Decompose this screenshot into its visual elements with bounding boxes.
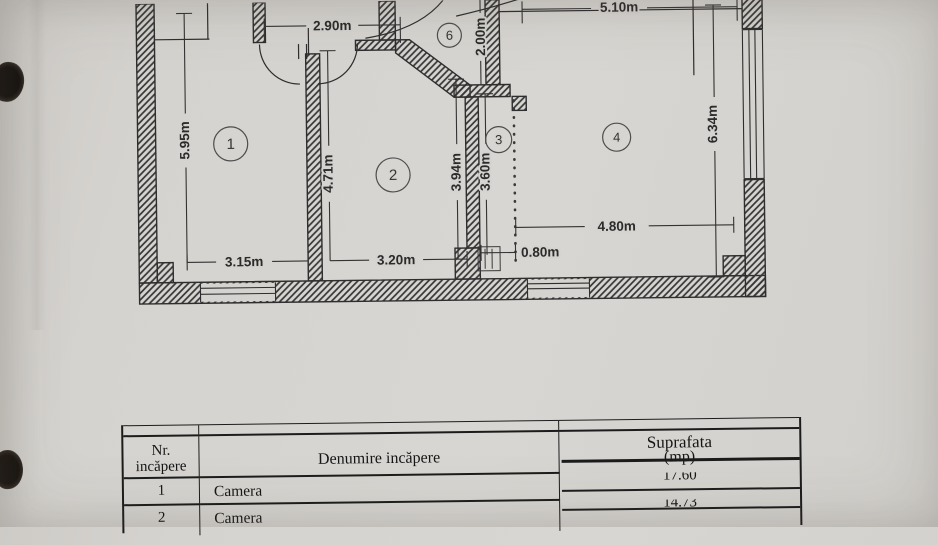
room-6-number: 6	[446, 28, 453, 43]
room-4-number: 4	[613, 130, 620, 145]
wall-outer-edge	[762, 29, 764, 178]
door-arc-hall	[365, 0, 443, 38]
header-suprafata: Suprafata (mp)	[559, 429, 799, 474]
dimension-label-corridor-width: 0.80m	[521, 244, 559, 259]
dim-line	[184, 13, 185, 113]
dotted-partition-line	[514, 100, 516, 266]
dimension-label-hall-width: 2.90m	[313, 18, 351, 33]
strip-cell	[123, 425, 199, 435]
row2-nr: 2	[124, 505, 200, 536]
dim-line	[647, 7, 737, 8]
window-bottom-left	[200, 283, 275, 302]
window-sill-line	[527, 288, 589, 289]
dim-line	[457, 200, 458, 259]
dim-line	[423, 259, 467, 260]
room-3-number: 3	[495, 132, 502, 147]
dimension-label-room1-height: 5.95m	[177, 121, 192, 159]
dimension-label-corridor-height-right: 3.60m	[477, 153, 492, 191]
row1-area-value: 17.60	[663, 471, 697, 485]
scanned-document-page: { "floor_plan": { "rooms": [ {"number": …	[0, 0, 938, 527]
room-2-number: 2	[389, 167, 398, 184]
dimension-label-room4-width: 4.80m	[598, 218, 636, 233]
row2-area: 14.73	[560, 498, 800, 528]
dimension-label-room4-height: 6.34m	[705, 105, 720, 143]
wall-right-top	[742, 0, 762, 29]
room-markers: 1 2 3 4 6	[212, 21, 631, 194]
header-nr-line1: Nr.	[123, 442, 198, 459]
dim-line	[522, 8, 591, 9]
dimension-label-room2-height: 4.71m	[320, 154, 335, 192]
room-1-number: 1	[226, 136, 235, 153]
row2-area-value: 14.73	[663, 498, 697, 512]
paper-sheet: 2.90m 5.10m 2.00m 5.95m 3.15m 4.71m 3.20…	[0, 0, 938, 545]
window-right-wall	[744, 29, 763, 178]
dim-line	[516, 227, 585, 228]
dim-line	[715, 151, 717, 277]
dimension-label-room2-width: 3.20m	[377, 252, 415, 267]
header-nr-line2: incăpere	[124, 458, 199, 475]
wall-hall-left	[379, 1, 395, 40]
dim-line	[329, 202, 330, 261]
row1-area: 17.60	[560, 471, 800, 501]
dim-line	[328, 51, 329, 146]
wall-right-bottom	[744, 179, 765, 296]
row2-name: Camera	[200, 501, 560, 535]
wall-left-step	[157, 263, 173, 283]
floor-plan: 2.90m 5.10m 2.00m 5.95m 3.15m 4.71m 3.20…	[0, 0, 938, 436]
wall-hall-ledge	[355, 40, 395, 50]
door-arc-right	[317, 43, 357, 83]
window-sill-line	[527, 283, 589, 284]
dimension-label-room1-width: 3.15m	[225, 254, 263, 269]
header-denumire-label: Denumire incăpere	[318, 449, 440, 467]
dim-line	[713, 5, 714, 97]
wall-top-door-jamb	[253, 2, 265, 42]
header-nr-incapere: Nr. incăpere	[123, 436, 200, 479]
wall-inner-edge	[742, 30, 744, 179]
partition-edge	[154, 39, 209, 40]
dim-line	[264, 26, 306, 27]
header-denumire: Denumire incăpere	[199, 432, 559, 478]
dimension-label-corridor-height-left: 3.94m	[448, 153, 463, 191]
door-arc-left	[259, 44, 299, 84]
dimension-label-entry-depth: 2.00m	[473, 18, 488, 56]
dim-line	[649, 225, 734, 226]
dim-line	[486, 200, 487, 255]
wall-corridor-top	[454, 84, 510, 97]
door-leaf-line	[693, 0, 694, 75]
dim-line	[186, 167, 187, 262]
wall-left-exterior	[136, 4, 157, 283]
area-table: Nr. incăpere Denumire incăpere Suprafata…	[121, 417, 802, 533]
wall-right-step	[723, 256, 745, 276]
row1-nr: 1	[124, 478, 200, 506]
dimension-label-room4-top: 5.10m	[600, 0, 638, 15]
dim-line	[358, 25, 400, 26]
